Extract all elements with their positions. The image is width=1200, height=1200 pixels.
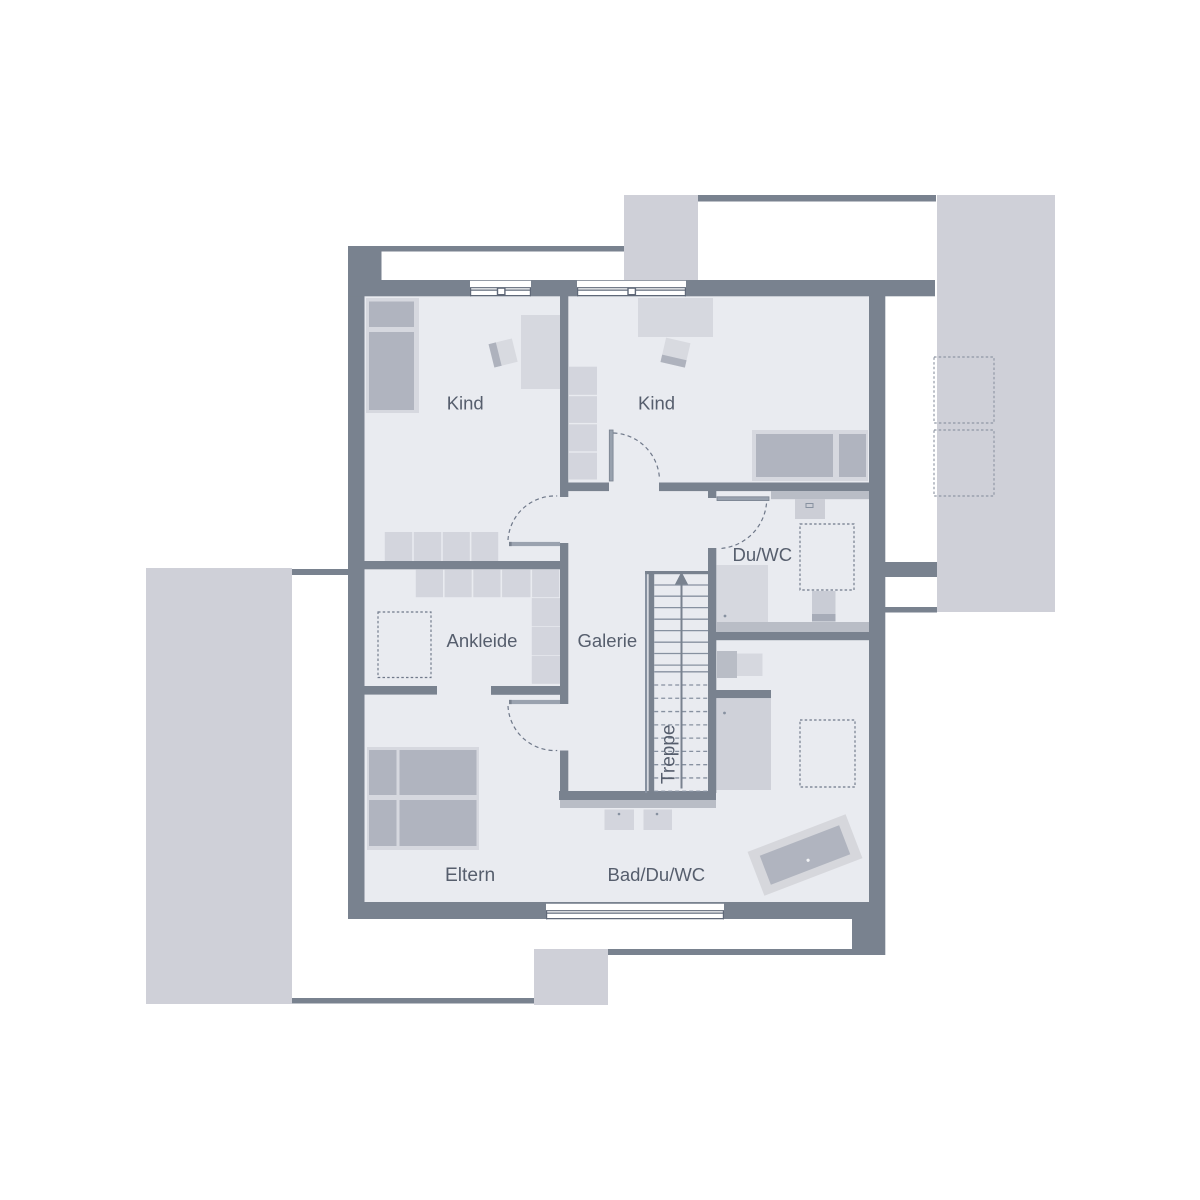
svg-text:Kind: Kind — [638, 393, 675, 414]
svg-text:Galerie: Galerie — [578, 630, 638, 651]
svg-text:Bad/Du/WC: Bad/Du/WC — [608, 864, 706, 885]
svg-text:Ankleide: Ankleide — [447, 630, 518, 651]
svg-text:Treppe: Treppe — [659, 725, 680, 785]
svg-text:Kind: Kind — [447, 393, 484, 414]
svg-text:Eltern: Eltern — [445, 865, 495, 886]
svg-text:Du/WC: Du/WC — [733, 544, 793, 565]
